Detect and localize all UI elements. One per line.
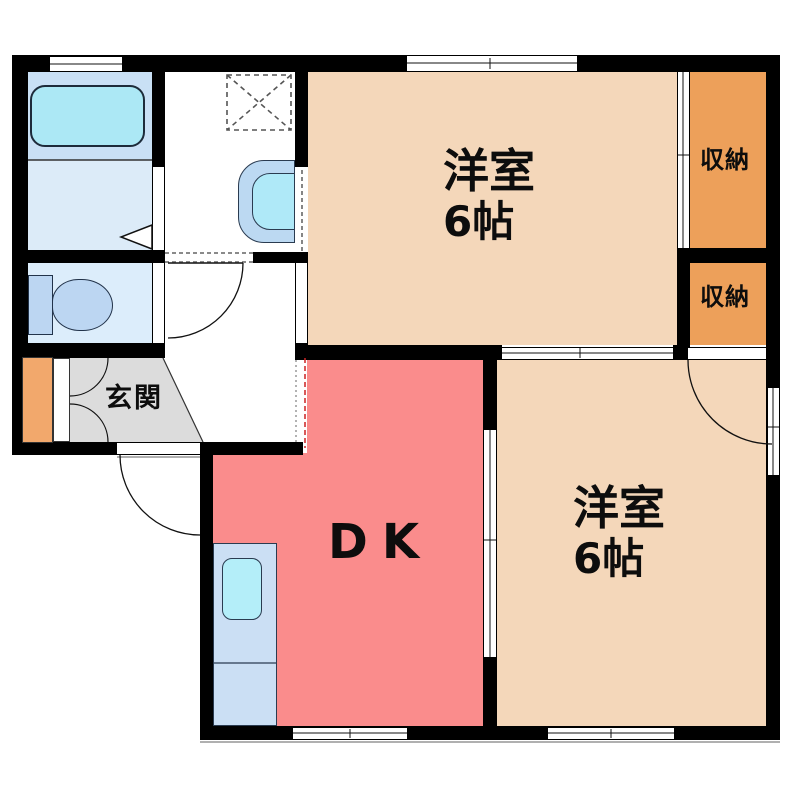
toilet-bowl-icon [52,279,113,331]
door-bedroom-top [295,263,308,343]
room-size: 6帖 [443,198,535,246]
door-swing-arc [168,263,243,338]
toilet-tank-icon [28,275,53,335]
wall-segment [483,657,497,740]
washing-machine-pan-icon [227,75,291,130]
wall-segment [295,72,308,167]
window-sill [117,456,200,458]
room-label-bedroom-bottom: 洋室 6帖 [573,482,665,583]
entrance-door-swing-arc [120,455,200,535]
wall-segment [152,72,165,167]
wall-segment [12,442,117,455]
door-shoe-cabinet [53,358,70,442]
window-bath [50,56,122,72]
door-entrance [117,442,200,455]
wall-segment [483,345,497,430]
window-dk [293,727,407,740]
room-name: 洋室 [443,145,535,198]
room-label-bedroom-top: 洋室 6帖 [443,145,535,246]
wall-segment [200,442,303,455]
window-bedroom-top [407,55,577,72]
window-sill [200,741,780,743]
room-name: 洋室 [573,482,665,535]
room-label-entrance: 玄関 [105,383,163,414]
wall-segment [673,345,688,360]
wall-segment [200,442,213,740]
room-label-closet-top: 収納 [700,147,750,175]
floorplan-canvas: 洋室 6帖 洋室 6帖 DK 玄関 収納 収納 [0,0,800,800]
wash-basin-bowl-icon [252,173,295,230]
wall-segment [12,250,165,263]
wall-segment [253,252,308,263]
room-label-dk: DK [328,515,433,570]
room-washroom [28,160,152,250]
sliding-door-between-bedrooms [502,347,673,360]
door-closet-bottom [688,347,766,360]
wall-segment [677,263,690,347]
window-bedroom-bottom-side [767,388,780,475]
wall-segment [677,248,780,263]
wall-segment [12,55,780,72]
room-dk-upper [307,358,483,458]
sliding-door-dk-bedroom [483,430,497,657]
wall-segment [295,345,502,360]
kitchen-sink-icon [222,558,262,620]
bathtub-icon [30,85,145,147]
door-toilet [152,263,165,343]
wall-segment [12,343,165,358]
opening-bedroom-top-dashed [295,167,308,252]
door-bath-folding [152,167,165,250]
window-bedroom-bottom [548,727,674,740]
room-label-closet-bottom: 収納 [700,284,750,312]
sliding-door-closet-top [677,72,690,248]
room-size: 6帖 [573,535,665,583]
shoe-cabinet-icon [22,357,53,443]
